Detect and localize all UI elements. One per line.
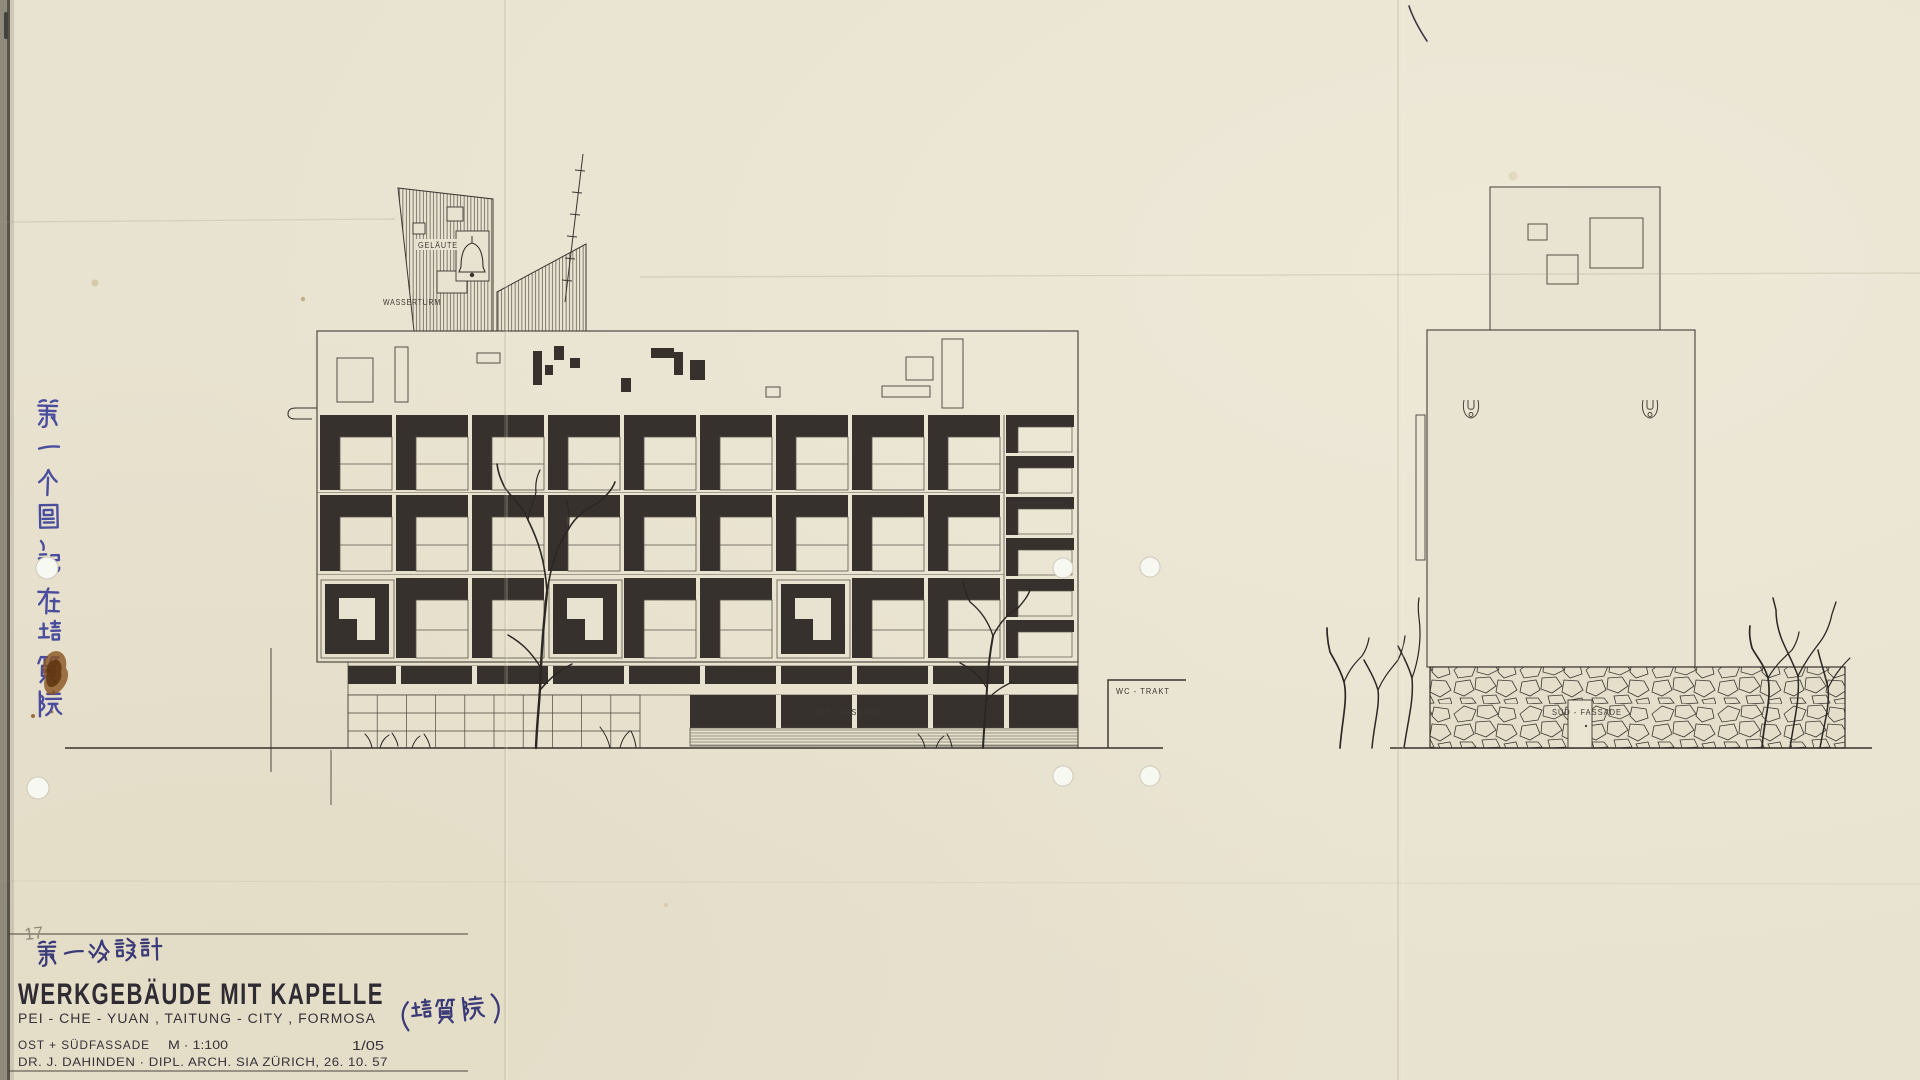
cell-left-fin xyxy=(320,495,340,571)
cell-left-fin xyxy=(624,415,644,490)
south-tower xyxy=(1490,187,1660,330)
cell-left-fin xyxy=(700,495,720,571)
punch-hole xyxy=(27,777,49,799)
cell-left-fin xyxy=(852,578,872,658)
clerestory-post xyxy=(1004,666,1009,684)
cell-top-fin xyxy=(720,578,772,600)
clerestory-post xyxy=(700,666,705,684)
cell-top-fin xyxy=(492,578,544,600)
cell-left-fin xyxy=(624,578,644,658)
glazing-post xyxy=(928,695,933,728)
clerestory-post xyxy=(396,666,401,684)
door-handle xyxy=(1585,725,1587,727)
cell-left-fin xyxy=(472,415,492,490)
facade-line: OST + SÜDFASSADE xyxy=(18,1038,150,1052)
punch-hole xyxy=(36,557,58,579)
cell-top-fin xyxy=(720,495,772,517)
pencil-number: 17 xyxy=(23,923,44,944)
cell-left-fin xyxy=(548,415,568,490)
clerestory-post xyxy=(776,666,781,684)
south-block xyxy=(1427,330,1695,667)
tower-opening xyxy=(413,223,425,234)
cell-top-fin xyxy=(340,495,392,517)
scanned-drawing: GELÄUTE WASSERTURM xyxy=(0,0,1920,1080)
cell-left-fin xyxy=(548,495,568,571)
edge-mark xyxy=(4,12,8,39)
cell-top-fin xyxy=(872,495,924,517)
clerestory-post xyxy=(852,666,857,684)
cell-left-fin xyxy=(928,415,948,490)
paper-speck xyxy=(664,903,668,907)
cell-top-fin xyxy=(568,415,620,437)
cell-top-fin xyxy=(644,495,696,517)
sheet-title: WERKGEBÄUDE MIT KAPELLE xyxy=(18,978,384,1011)
clerestory-post xyxy=(928,666,933,684)
punch-hole xyxy=(1053,766,1073,786)
punch-hole xyxy=(1140,557,1160,577)
cell-left-fin xyxy=(396,578,416,658)
wc-label: WC - TRAKT xyxy=(1116,686,1170,696)
cell-top-fin xyxy=(416,578,468,600)
cell-top-fin xyxy=(872,578,924,600)
cell-top-fin xyxy=(644,578,696,600)
glazing-post xyxy=(1004,695,1009,728)
cell-left-fin xyxy=(472,495,492,571)
cell-left-fin xyxy=(624,495,644,571)
cell-top-fin xyxy=(416,495,468,517)
punch-hole xyxy=(1140,766,1160,786)
cell-left-fin xyxy=(776,495,796,571)
cell-top-fin xyxy=(568,495,620,517)
cell-left-fin xyxy=(320,415,340,490)
cell-top-fin xyxy=(644,415,696,437)
cell-top-fin xyxy=(340,415,392,437)
tower-opening xyxy=(447,207,463,221)
ground-floor xyxy=(348,662,1078,748)
cell-left-fin xyxy=(472,578,492,658)
water-tower-label: WASSERTURM xyxy=(383,297,441,307)
bell-label: GELÄUTE xyxy=(418,240,458,250)
glazing-post xyxy=(776,695,781,728)
cell-left-fin xyxy=(700,415,720,490)
cell-top-fin xyxy=(416,415,468,437)
cell-left-fin xyxy=(776,415,796,490)
cell-left-fin xyxy=(396,415,416,490)
south-facade-label: SÜD - FASSADE xyxy=(1552,707,1622,717)
cell-left-fin xyxy=(396,495,416,571)
cell-top-fin xyxy=(872,415,924,437)
drawing-sheet: GELÄUTE WASSERTURM xyxy=(0,0,1920,1080)
scale-note: M · 1:100 xyxy=(168,1038,228,1052)
cell-left-fin xyxy=(852,415,872,490)
paper-speck xyxy=(1509,172,1518,181)
scan-edge xyxy=(0,0,14,1080)
location-line: PEI - CHE - YUAN , TAITUNG - CITY , FORM… xyxy=(18,1011,376,1026)
cell-top-fin xyxy=(948,415,1000,437)
cell-top-fin xyxy=(948,495,1000,517)
sheet-number: 1/05 xyxy=(352,1039,384,1053)
cell-top-fin xyxy=(948,578,1000,600)
cell-left-fin xyxy=(700,578,720,658)
dark-glazing xyxy=(690,695,1078,728)
cell-top-fin xyxy=(492,415,544,437)
cell-top-fin xyxy=(720,415,772,437)
cell-top-fin xyxy=(796,495,848,517)
cell-top-fin xyxy=(492,495,544,517)
paper-speck xyxy=(301,297,305,301)
east-facade-label: OST - FASSADE xyxy=(812,707,882,717)
cell-left-fin xyxy=(852,495,872,571)
paper-speck xyxy=(92,280,99,287)
punch-hole xyxy=(1053,558,1073,578)
stone-wall xyxy=(1430,667,1845,748)
cell-left-fin xyxy=(928,495,948,571)
louver-band xyxy=(690,728,1078,746)
cell-left-fin xyxy=(928,578,948,658)
clerestory-post xyxy=(624,666,629,684)
clerestory-post xyxy=(472,666,477,684)
author-line: DR. J. DAHINDEN · DIPL. ARCH. SIA ZÜRICH… xyxy=(18,1055,388,1069)
cell-top-fin xyxy=(796,415,848,437)
